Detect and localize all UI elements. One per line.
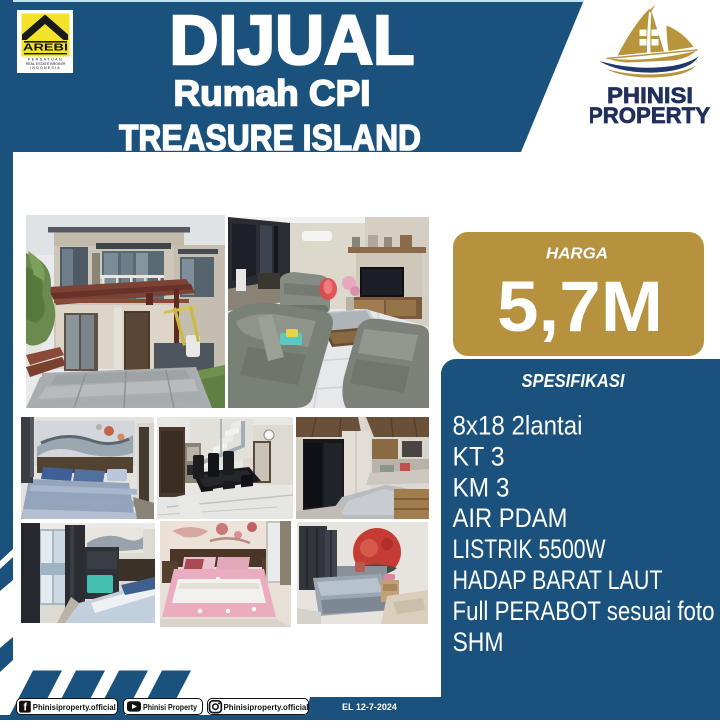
svg-text:Rumah CPI: Rumah CPI bbox=[174, 73, 371, 114]
svg-text:Phinisiproperty.official: Phinisiproperty.official bbox=[33, 702, 116, 712]
svg-text:Phinisi Property: Phinisi Property bbox=[143, 702, 197, 712]
svg-text:SPESIFIKASI: SPESIFIKASI bbox=[522, 371, 626, 391]
svg-text:LISTRIK 5500W: LISTRIK 5500W bbox=[453, 534, 606, 564]
svg-text:Phinisiproperty.official: Phinisiproperty.official bbox=[224, 702, 309, 712]
svg-text:TREASURE ISLAND: TREASURE ISLAND bbox=[119, 117, 421, 158]
svg-text:KM 3: KM 3 bbox=[453, 472, 510, 502]
svg-text:8x18 2lantai: 8x18 2lantai bbox=[453, 411, 583, 441]
svg-text:DIJUAL: DIJUAL bbox=[170, 1, 415, 79]
svg-text:Full PERABOT sesuai foto: Full PERABOT sesuai foto bbox=[453, 596, 715, 626]
svg-text:SHM: SHM bbox=[453, 627, 504, 657]
svg-text:5,7M: 5,7M bbox=[497, 268, 663, 347]
svg-text:AIR PDAM: AIR PDAM bbox=[453, 503, 568, 533]
svg-text:KT 3: KT 3 bbox=[453, 441, 505, 471]
svg-text:f: f bbox=[23, 701, 27, 713]
svg-text:HARGA: HARGA bbox=[546, 246, 608, 263]
svg-text:HADAP BARAT LAUT: HADAP BARAT LAUT bbox=[453, 565, 663, 595]
svg-text:PROPERTY: PROPERTY bbox=[590, 103, 710, 128]
